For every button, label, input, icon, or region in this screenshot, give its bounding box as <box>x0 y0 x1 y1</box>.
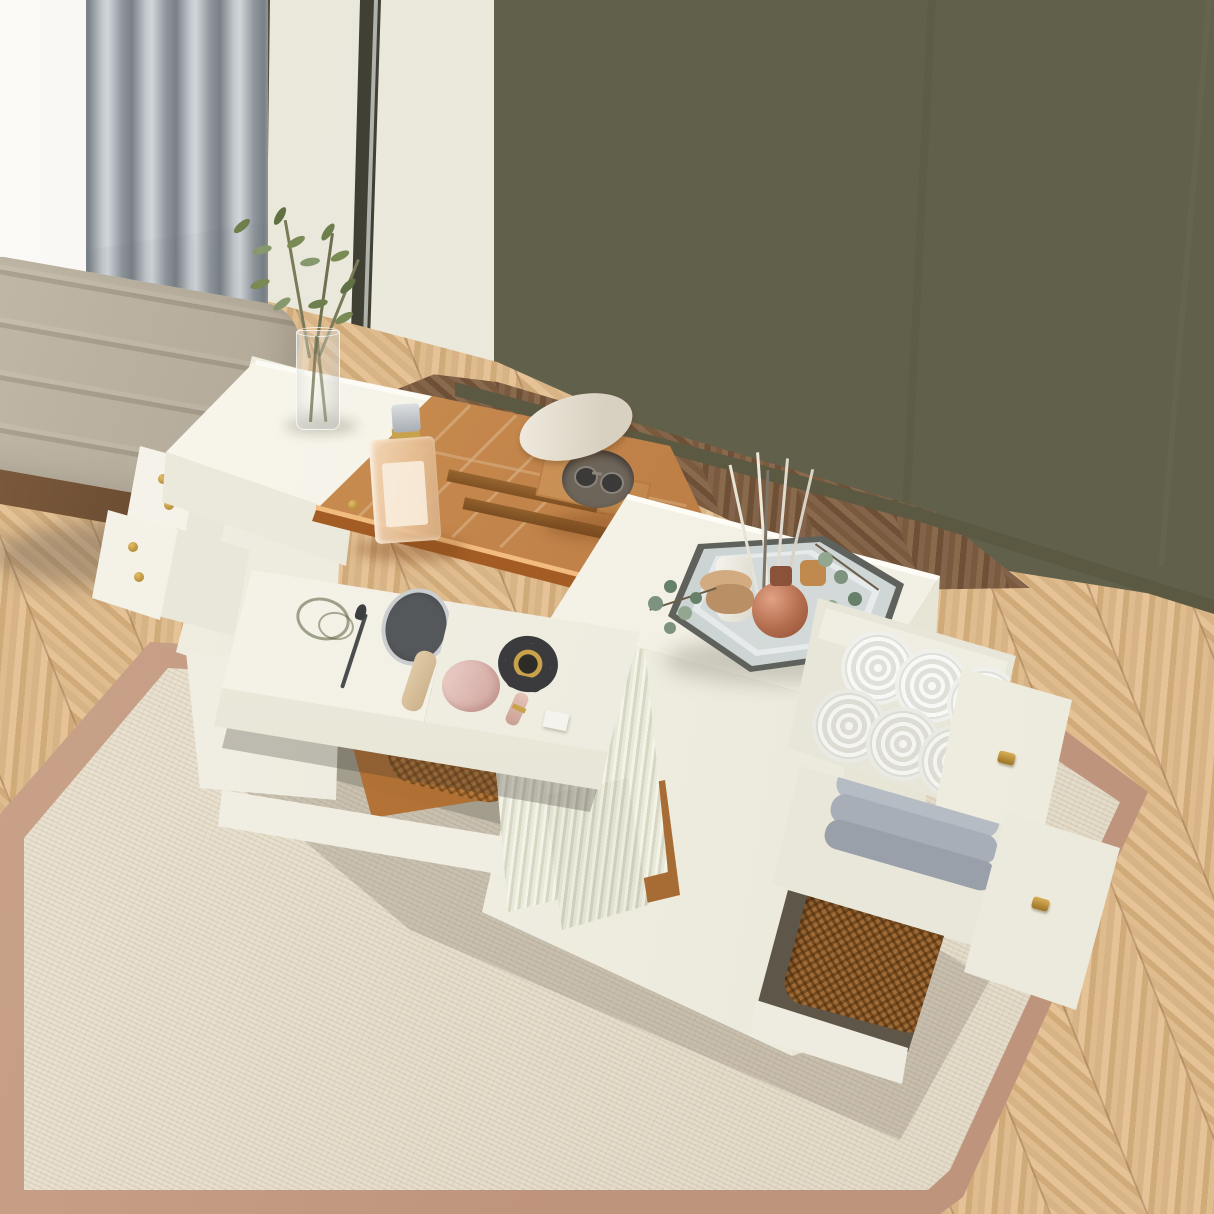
eucalyptus-leaf <box>678 606 692 620</box>
diffuser-neck <box>770 566 792 586</box>
perfume-label <box>382 461 428 528</box>
glass-screw <box>348 500 358 510</box>
eucalyptus-leaf <box>834 570 848 584</box>
reed-diffuser-bottle <box>752 582 808 638</box>
eucalyptus-leaf <box>690 592 702 604</box>
eucalyptus-leaf <box>848 592 862 606</box>
drawer-knob <box>134 572 144 582</box>
eucalyptus-leaf <box>664 580 677 593</box>
eucalyptus-leaf <box>664 622 676 634</box>
perfume-cap <box>391 403 421 433</box>
eucalyptus-leaf <box>648 596 663 611</box>
drawer-knob <box>128 542 138 552</box>
eucalyptus-leaf <box>818 552 833 567</box>
sunglasses-lens <box>600 472 624 494</box>
bedroom-scene: INNENARCH <box>0 0 1214 1214</box>
sunglasses-lens <box>574 466 598 488</box>
makeup-compact <box>442 660 500 712</box>
